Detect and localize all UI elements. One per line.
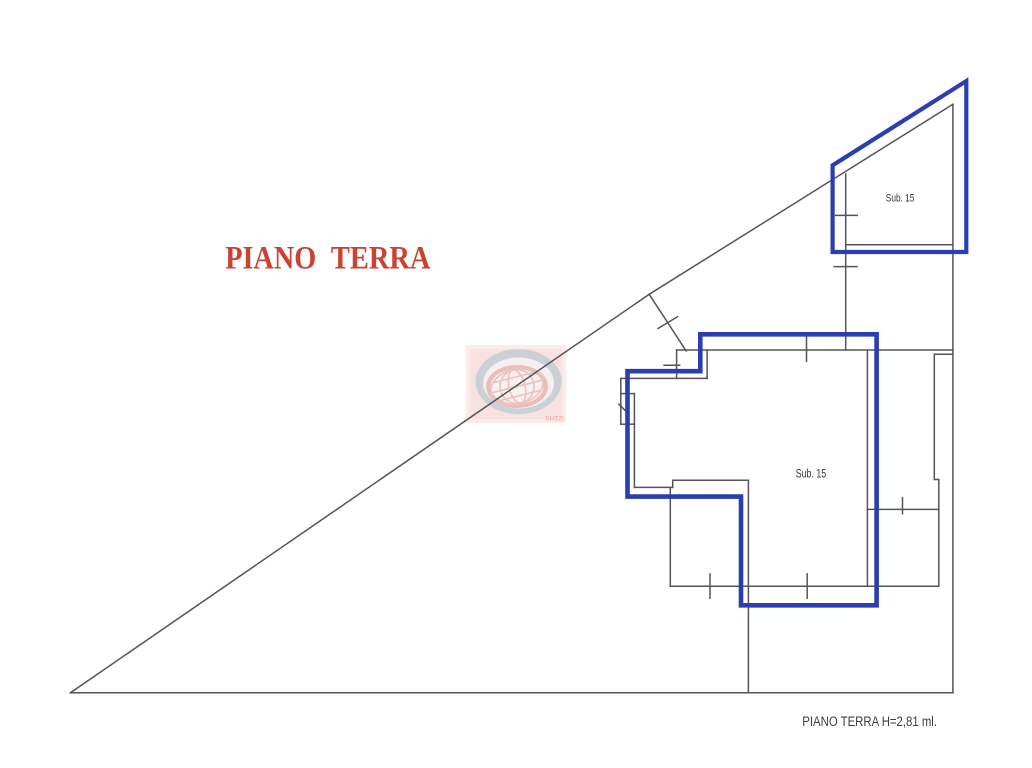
svg-text:PIANO: PIANO bbox=[225, 240, 316, 276]
svg-text:PIANO TERRA H=2,81 ml.: PIANO TERRA H=2,81 ml. bbox=[802, 714, 937, 729]
svg-text:TERRA: TERRA bbox=[331, 240, 431, 276]
svg-text:SUZZI: SUZZI bbox=[545, 416, 564, 423]
svg-text:Sub. 15: Sub. 15 bbox=[886, 193, 915, 205]
svg-text:Sub. 15: Sub. 15 bbox=[796, 469, 827, 481]
